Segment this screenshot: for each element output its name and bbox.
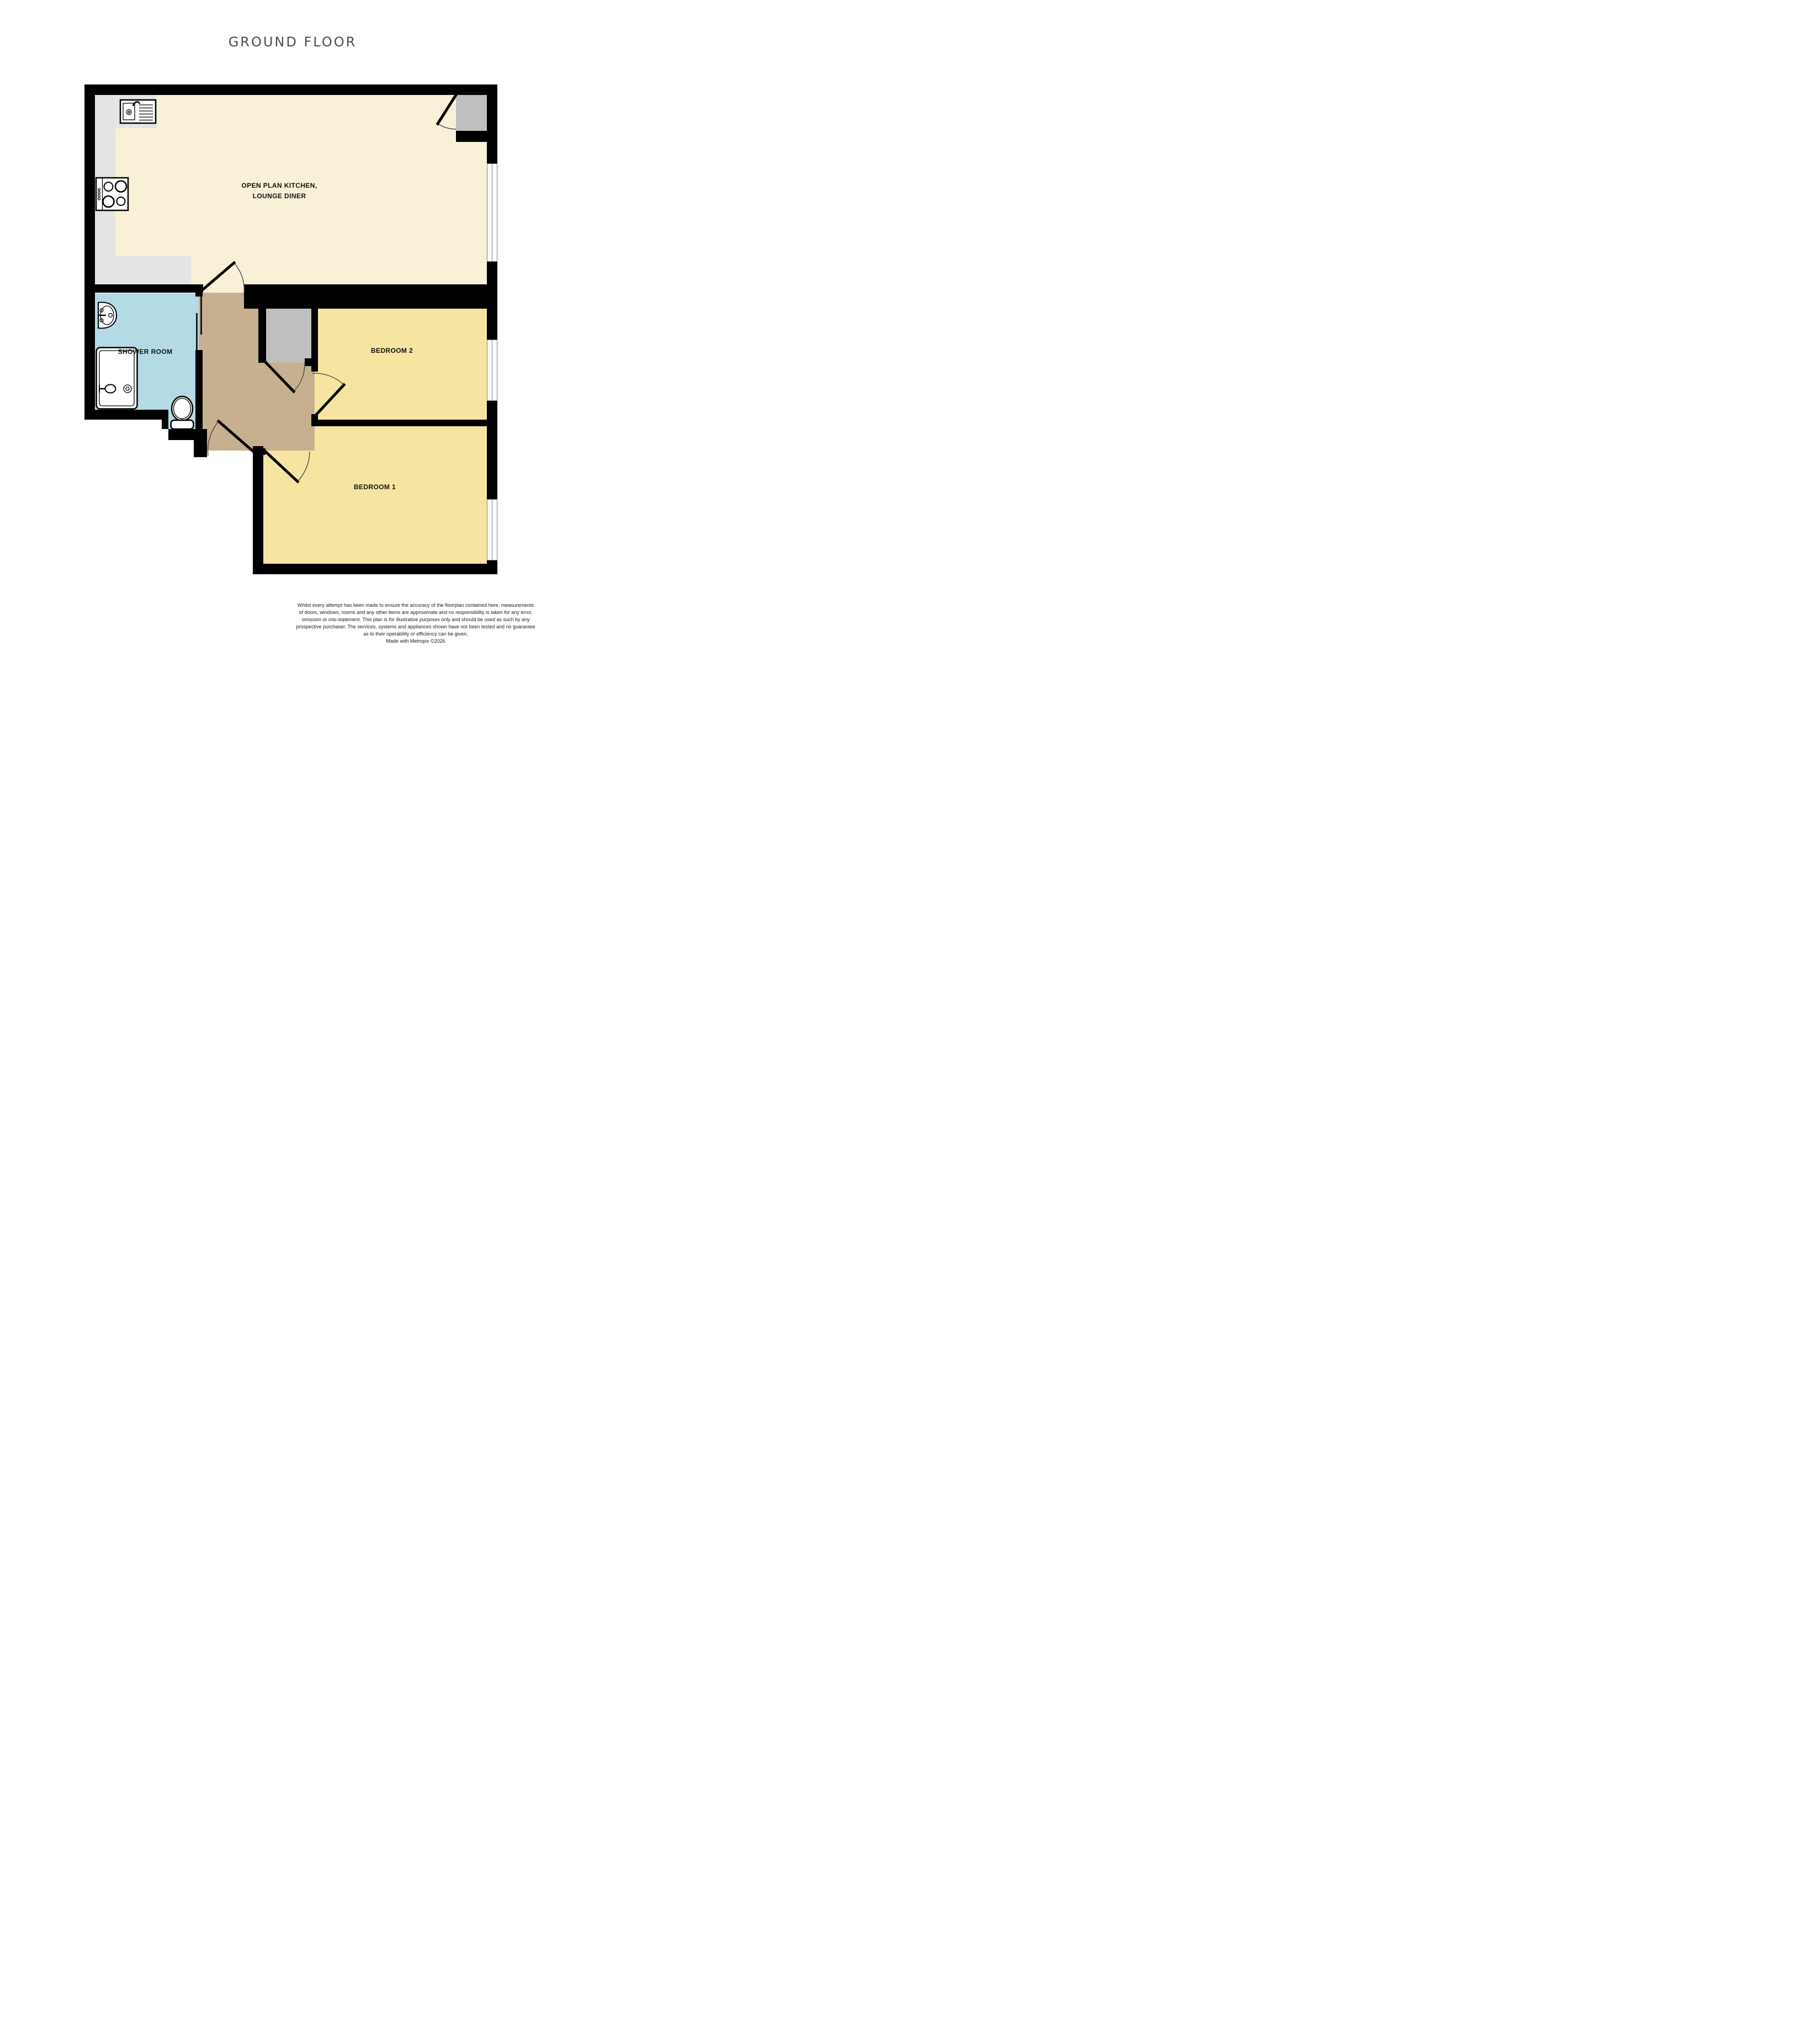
front-door-icon [208, 421, 253, 456]
vestibule-door-icon [438, 95, 456, 129]
kitchen-door-icon [203, 263, 244, 293]
disclaimer-line: prospective purchaser. The services, sys… [278, 623, 554, 631]
hob-icon [96, 178, 128, 210]
doors-and-fixtures-layer [0, 0, 607, 680]
toilet-icon [171, 396, 194, 429]
kitchen-label-line1: OPEN PLAN KITCHEN, [213, 181, 346, 191]
floorplan-page: GROUND FLOOR [0, 0, 607, 680]
disclaimer-text: Whilst every attempt has been made to en… [278, 602, 554, 645]
floorplan-diagram: OPEN PLAN KITCHEN, LOUNGE DINER SHOWER R… [0, 0, 607, 680]
kitchen-sink-icon [120, 100, 156, 123]
disclaimer-credit: Made with Metropix ©2026 [278, 638, 554, 645]
shower-room-sliding-door-icon [197, 297, 201, 350]
disclaimer-line: omission or mis-statement. This plan is … [278, 616, 554, 623]
shower-room-label: SHOWER ROOM [98, 347, 192, 357]
kitchen-label: OPEN PLAN KITCHEN, LOUNGE DINER [213, 181, 346, 202]
bathroom-basin-icon [98, 303, 116, 329]
cupboard-door-icon [266, 363, 305, 391]
bedroom-2-label: BEDROOM 2 [348, 346, 436, 356]
bedroom-2-door-icon [312, 373, 344, 416]
bedroom-1-label: BEDROOM 1 [331, 482, 419, 493]
bedroom-1-door-icon [266, 452, 310, 481]
kitchen-label-line2: LOUNGE DINER [213, 191, 346, 202]
disclaimer-line: Whilst every attempt has been made to en… [278, 602, 554, 609]
disclaimer-line: of doors, windows, rooms and any other i… [278, 609, 554, 616]
disclaimer-line: as to their operability or efficiency ca… [278, 631, 554, 638]
